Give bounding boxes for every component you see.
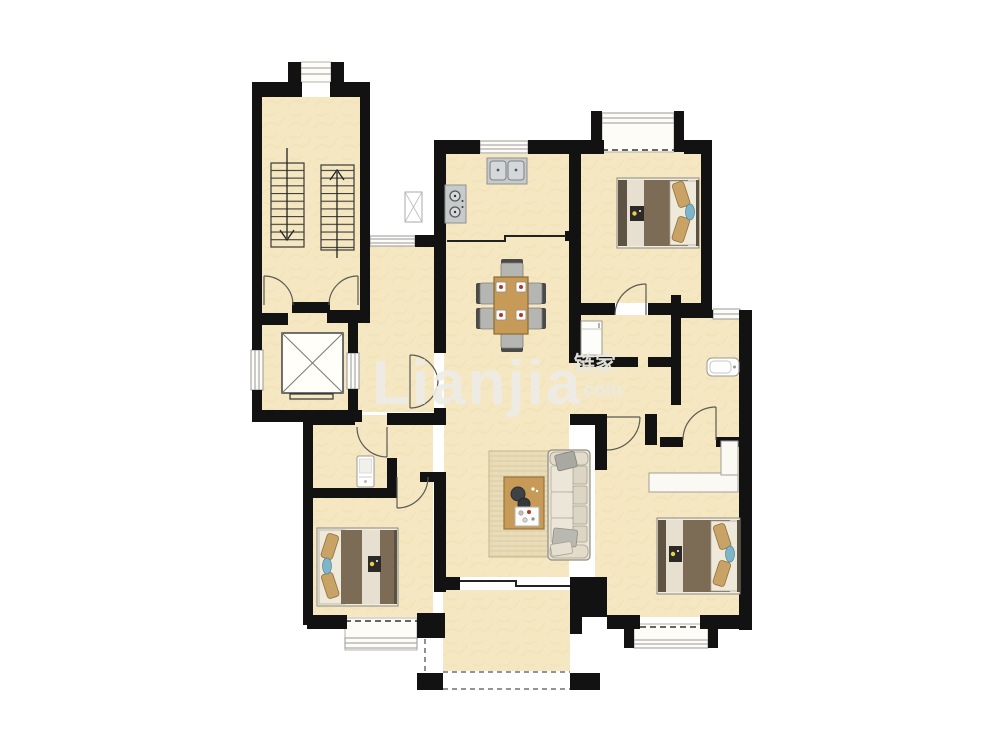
balcony-floor [443,590,570,673]
watermark-brand: Lianjia [372,349,582,418]
corridor-window [370,236,415,246]
watermark-cjk: 链家 [574,352,617,376]
balcony-sliding-door [460,581,570,586]
bedroom1-bed [617,178,699,248]
water-heater [357,456,374,487]
watermark-domain: .com [578,380,622,401]
vent-shaft [405,192,422,222]
elevator-lobby-window-left [251,350,263,390]
bathroom-washbasin [707,358,739,376]
bedroom2-bed [317,528,398,606]
elevator-lobby-window-right [347,353,359,389]
bedroom3-bay-window [634,624,708,648]
place-setting [496,310,506,320]
coffee-table [504,477,544,529]
dining-chair [526,308,546,329]
stove [445,185,466,223]
place-setting [516,282,526,292]
bedside-tray [630,206,644,221]
place-setting [496,282,506,292]
dining-chair [526,283,546,304]
kitchen-window [480,141,528,153]
stairwell-window [301,62,331,82]
bathroom-window [713,309,740,319]
bedroom3-bed [657,518,740,594]
bedroom2-bay-window [345,618,417,650]
place-setting [516,310,526,320]
tray [515,507,539,526]
floor-plan: Lianjia 链家 .com [0,0,1004,753]
floor-plan-page: Lianjia 链家 .com [0,0,1004,753]
bedroom1-bay-window [602,113,674,152]
dining-chair [501,259,523,279]
dining-chair [476,283,496,304]
sofa [548,450,590,560]
fridge [581,321,602,355]
kitchen-sink [487,158,527,184]
elevator [282,333,343,399]
living-room-set [489,450,590,560]
dining-chair [476,308,496,329]
